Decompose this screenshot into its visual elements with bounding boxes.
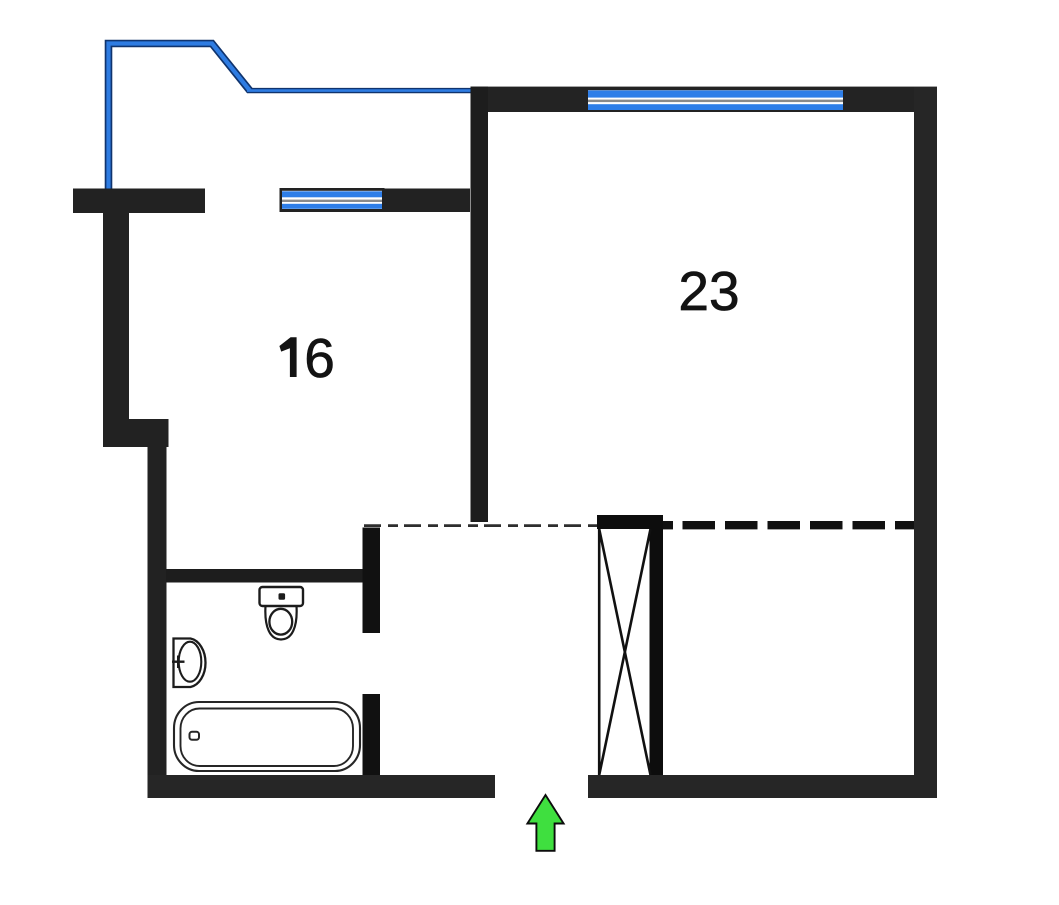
- svg-text:6: 6: [304, 327, 335, 389]
- svg-text:23: 23: [678, 260, 739, 322]
